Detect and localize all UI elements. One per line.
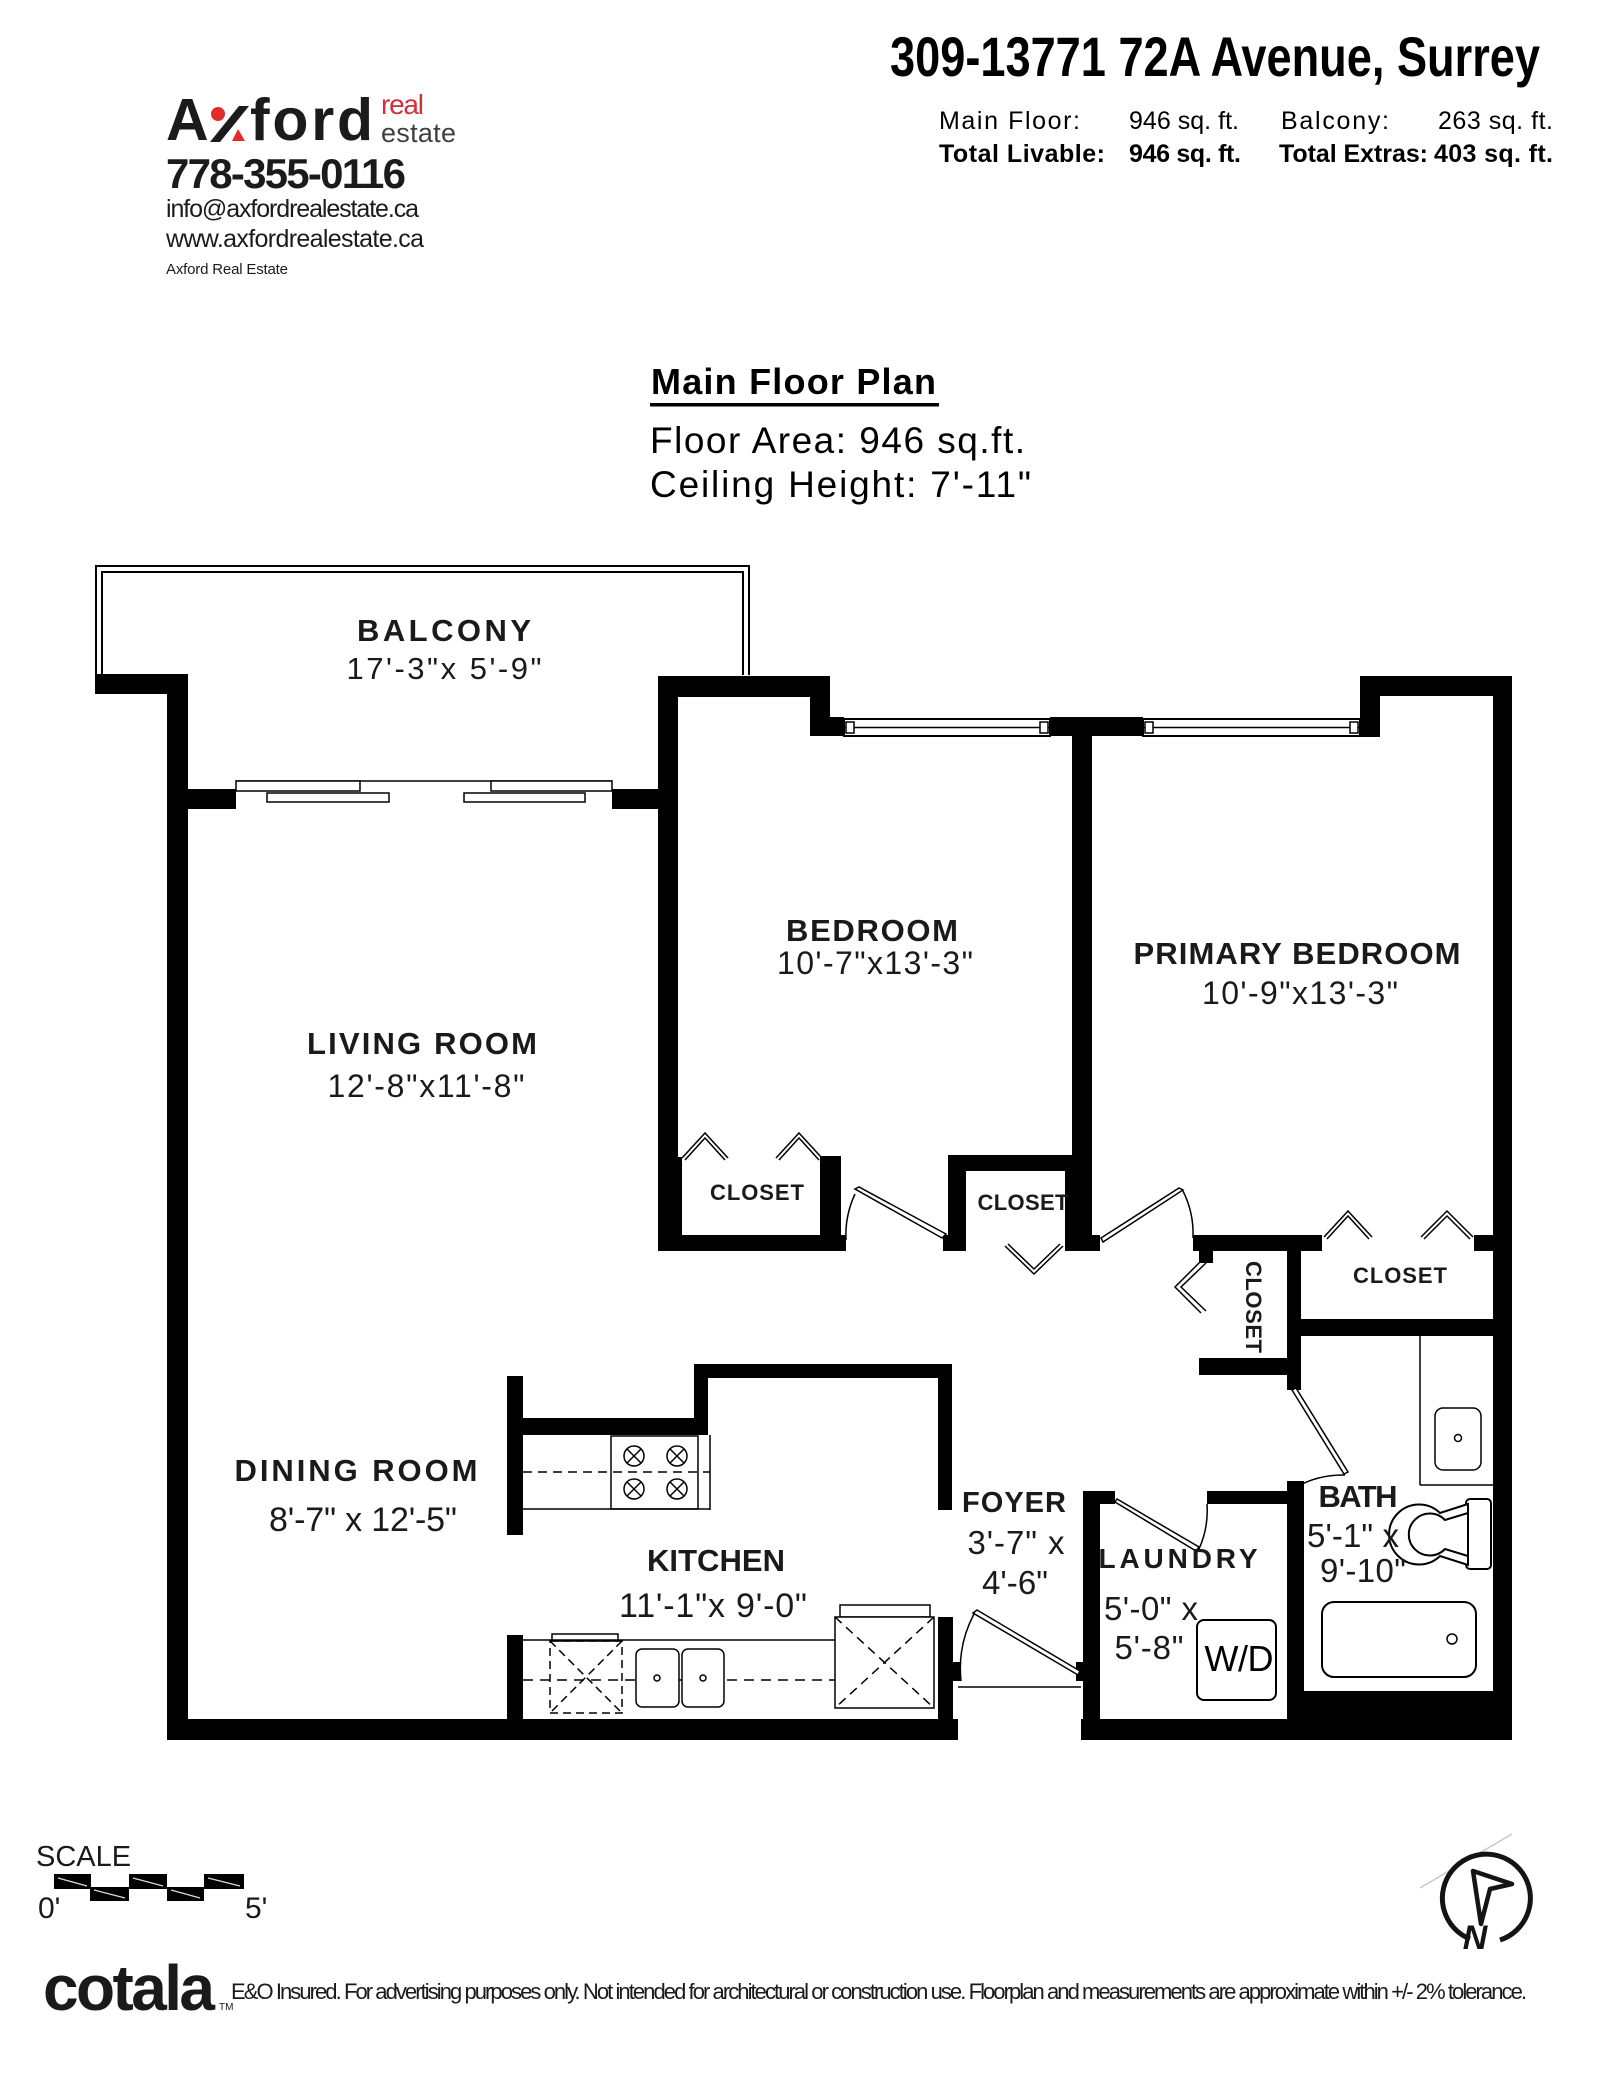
svg-text:E&O Insured. For advertising p: E&O Insured. For advertising purposes on… — [231, 1979, 1527, 2004]
svg-text:403 sq. ft.: 403 sq. ft. — [1434, 140, 1553, 168]
svg-text:0': 0' — [38, 1892, 60, 1925]
svg-text:12'-8"x11'-8": 12'-8"x11'-8" — [328, 1068, 525, 1104]
svg-text:N: N — [1463, 1919, 1489, 1957]
svg-text:5'-8": 5'-8" — [1115, 1629, 1184, 1666]
svg-text:Main Floor Plan: Main Floor Plan — [651, 361, 936, 402]
svg-text:CLOSET: CLOSET — [978, 1190, 1070, 1215]
svg-text:CLOSET: CLOSET — [1241, 1261, 1266, 1354]
svg-text:Floor Area: 946 sq.ft.: Floor Area: 946 sq.ft. — [650, 420, 1025, 461]
svg-text:17'-3"x 5'-9": 17'-3"x 5'-9" — [347, 651, 542, 686]
svg-text:10'-9"x13'-3": 10'-9"x13'-3" — [1202, 975, 1398, 1011]
svg-text:BALCONY: BALCONY — [357, 613, 531, 648]
svg-text:PRIMARY BEDROOM: PRIMARY BEDROOM — [1134, 936, 1461, 971]
svg-text:5': 5' — [245, 1892, 267, 1925]
svg-text:309-13771 72A Avenue, Surrey: 309-13771 72A Avenue, Surrey — [890, 25, 1540, 88]
svg-text:4'-6": 4'-6" — [982, 1564, 1048, 1601]
svg-text:9'-10": 9'-10" — [1320, 1552, 1406, 1589]
svg-text:estate: estate — [381, 118, 456, 148]
svg-text:A: A — [166, 87, 209, 153]
svg-text:SCALE: SCALE — [36, 1841, 131, 1873]
svg-text:946 sq. ft.: 946 sq. ft. — [1129, 140, 1241, 168]
svg-text:cotala: cotala — [43, 1952, 215, 2024]
svg-text:Axford Real Estate: Axford Real Estate — [166, 261, 288, 278]
svg-text:5'-0" x: 5'-0" x — [1104, 1590, 1199, 1627]
svg-text:263 sq. ft.: 263 sq. ft. — [1438, 107, 1553, 135]
svg-text:LAUNDRY: LAUNDRY — [1099, 1543, 1258, 1574]
svg-text:5'-1" x: 5'-1" x — [1307, 1517, 1400, 1554]
svg-text:CLOSET: CLOSET — [710, 1180, 805, 1205]
svg-text:BATH: BATH — [1319, 1479, 1398, 1514]
svg-text:3'-7" x: 3'-7" x — [968, 1524, 1066, 1561]
svg-text:Ceiling Height: 7'-11": Ceiling Height: 7'-11" — [650, 464, 1031, 505]
svg-text:10'-7"x13'-3": 10'-7"x13'-3" — [777, 945, 973, 981]
svg-text:ford: ford — [250, 87, 373, 153]
svg-text:real: real — [381, 89, 424, 120]
svg-text:Total Livable:: Total Livable: — [939, 140, 1105, 168]
svg-text:BEDROOM: BEDROOM — [786, 913, 958, 948]
svg-text:info@axfordrealestate.ca: info@axfordrealestate.ca — [166, 195, 419, 223]
svg-text:DINING ROOM: DINING ROOM — [235, 1453, 478, 1488]
svg-text:CLOSET: CLOSET — [1353, 1263, 1448, 1288]
svg-text:KITCHEN: KITCHEN — [647, 1543, 785, 1578]
svg-text:778-355-0116: 778-355-0116 — [166, 150, 406, 197]
svg-text:8'-7" x 12'-5": 8'-7" x 12'-5" — [269, 1501, 457, 1539]
svg-text:FOYER: FOYER — [962, 1487, 1066, 1519]
svg-text:www.axfordrealestate.ca: www.axfordrealestate.ca — [165, 225, 424, 253]
svg-text:Total Extras:: Total Extras: — [1279, 140, 1428, 168]
svg-text:W/D: W/D — [1205, 1638, 1274, 1679]
svg-text:946 sq. ft.: 946 sq. ft. — [1129, 107, 1239, 135]
svg-text:11'-1"x 9'-0": 11'-1"x 9'-0" — [619, 1587, 807, 1625]
